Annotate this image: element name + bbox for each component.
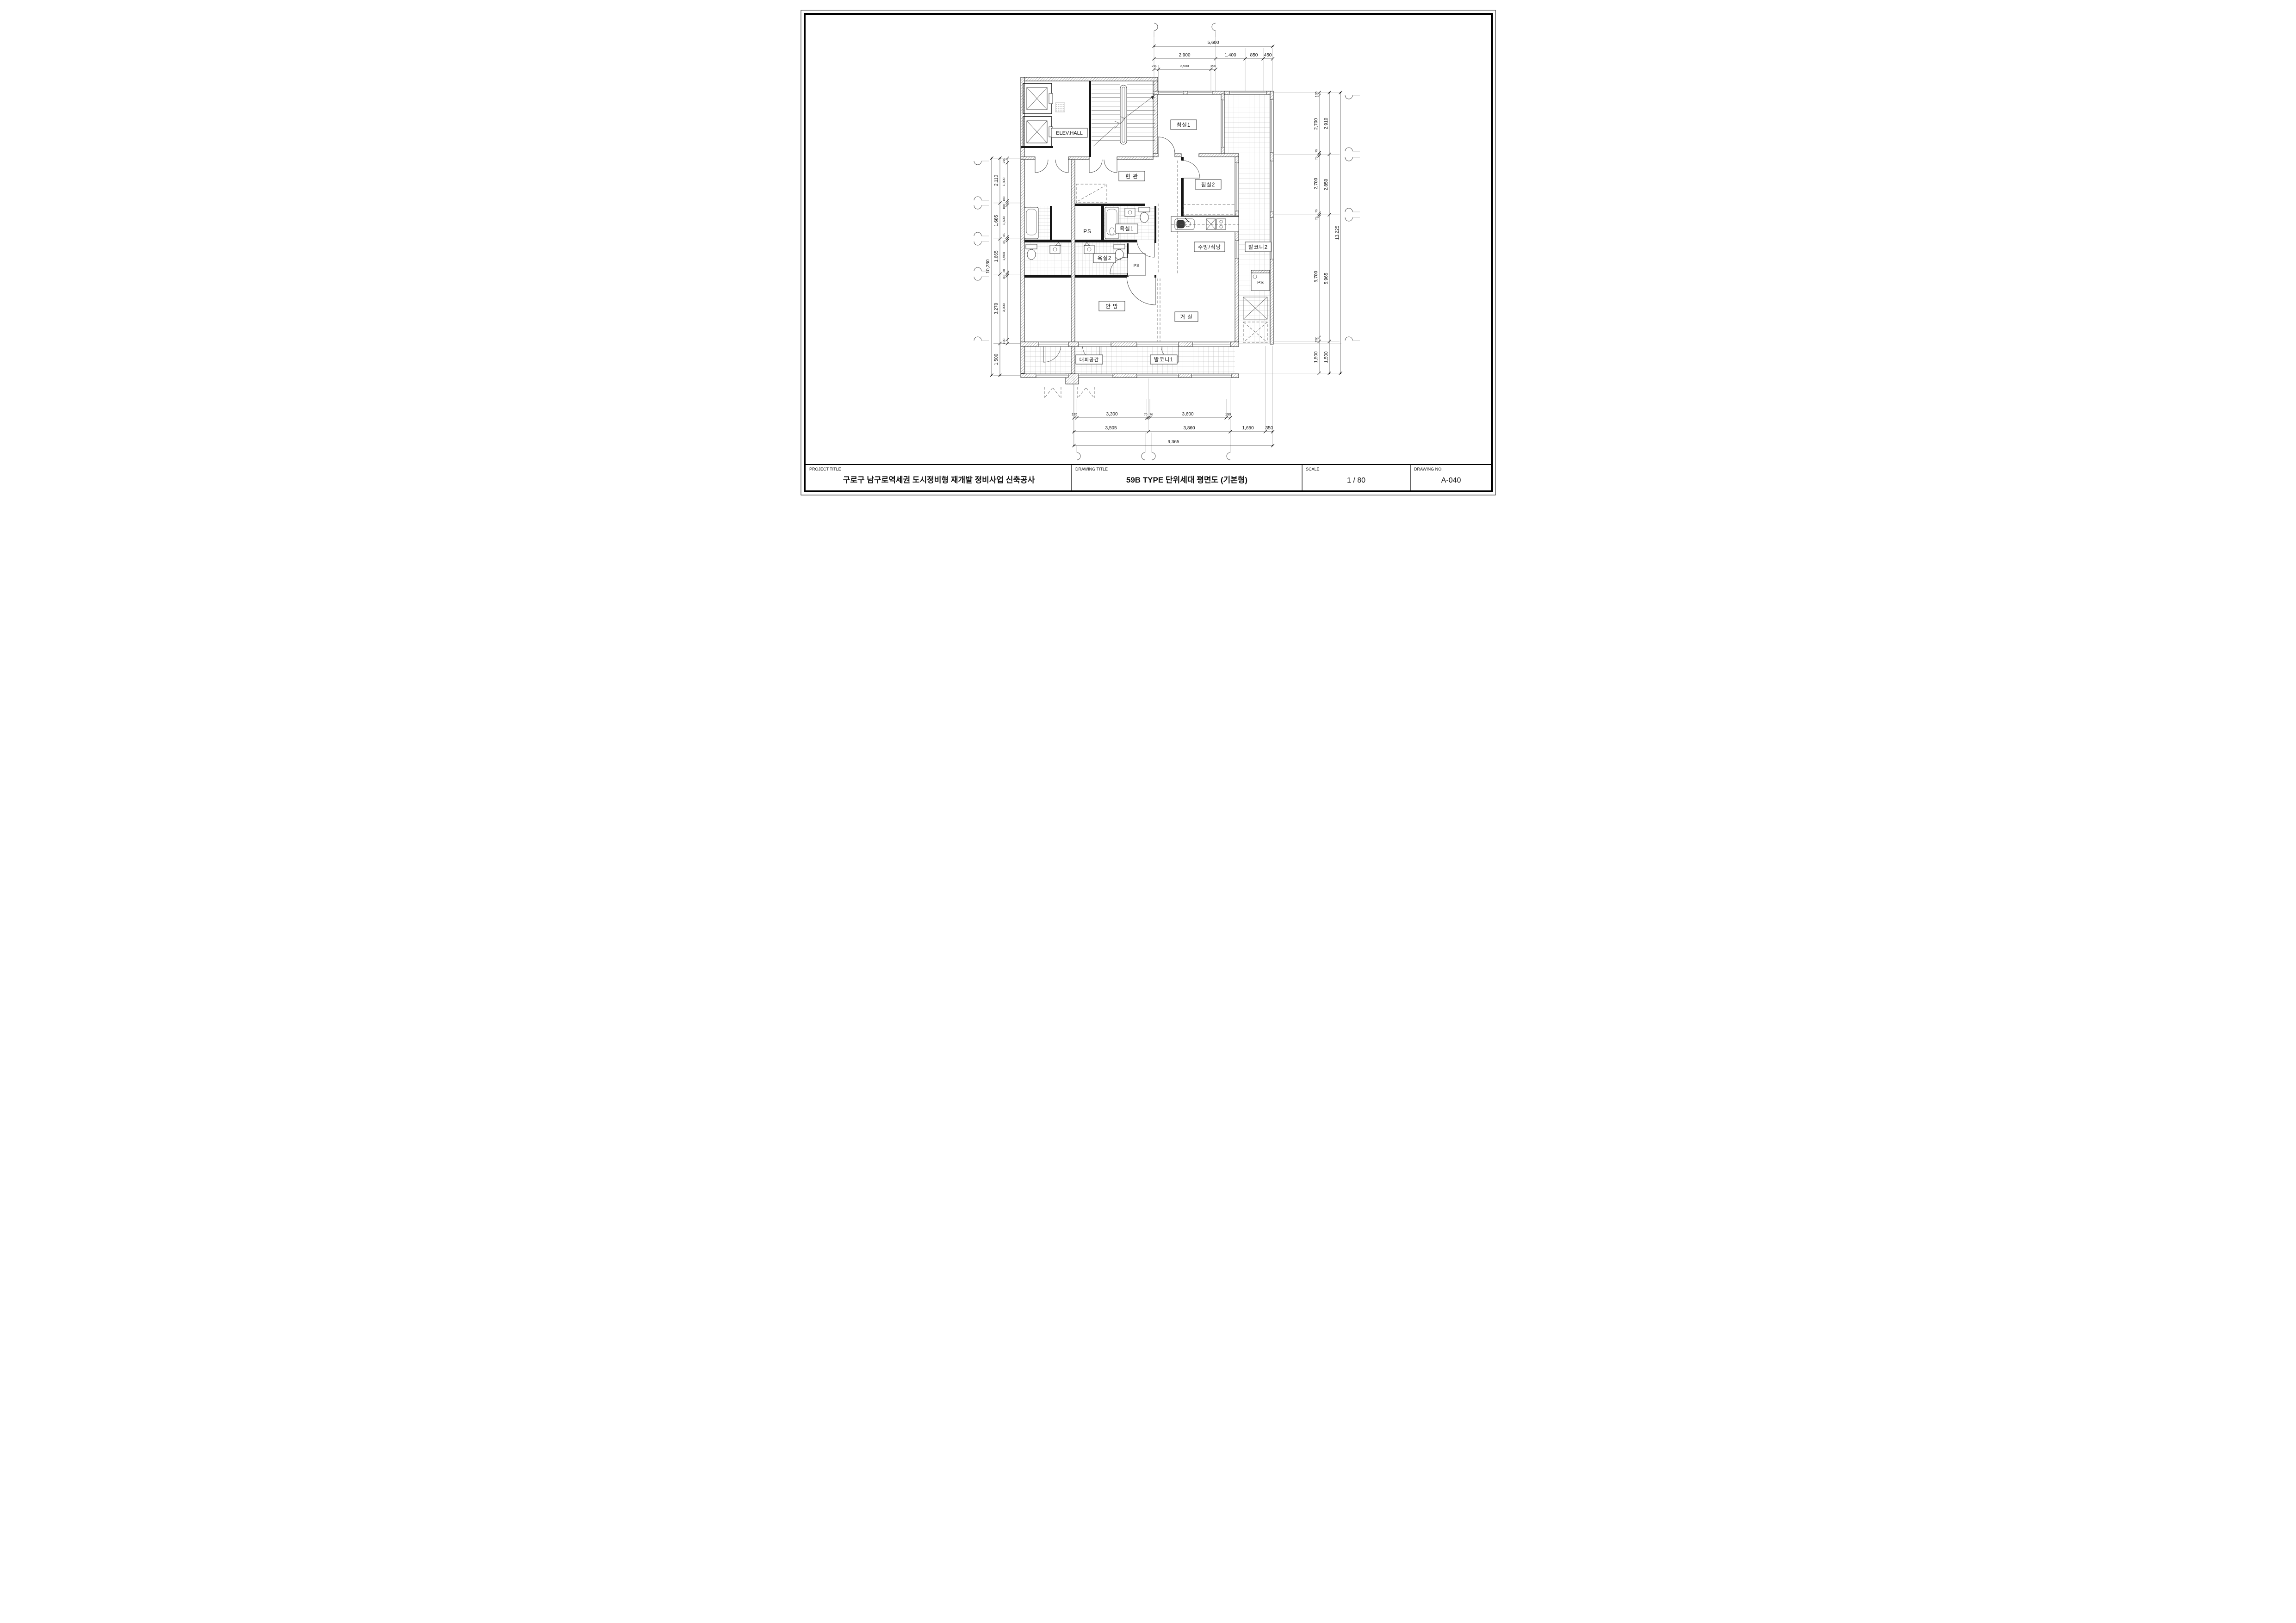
grid-bubble [974, 337, 981, 341]
grid-bubble [974, 277, 981, 280]
svg-text:3,000: 3,000 [1002, 304, 1006, 312]
ps-label-3: PS [1257, 280, 1263, 285]
sink [1084, 245, 1094, 254]
svg-text:1,400: 1,400 [1224, 53, 1236, 58]
grid-bubble [1345, 337, 1353, 341]
svg-text:발코니1: 발코니1 [1154, 357, 1173, 363]
room-label-entrance: 현 관 [1119, 171, 1145, 181]
grid-bubble [1152, 452, 1155, 460]
svg-text:450: 450 [1264, 53, 1272, 58]
room-label-living: 거 실 [1175, 312, 1198, 322]
svg-text:85: 85 [1003, 240, 1006, 244]
sink [1125, 208, 1135, 217]
room-label-kitchen: 주방/식당 [1194, 242, 1225, 252]
grid-bubble [974, 232, 981, 236]
floor-drain-grid [1055, 103, 1065, 112]
grid-bubble [1227, 452, 1230, 460]
dimension-top: 5,600 2,900 1,400 850 450 210 2,500 190 [1151, 40, 1272, 68]
svg-text:190: 190 [1314, 337, 1318, 343]
floor-plan-drawing: PROJECT TITLE 구로구 남구로역세권 도시정비형 재개발 정비사업 … [791, 0, 1506, 505]
svg-text:발코니2: 발코니2 [1248, 244, 1267, 250]
title-block: PROJECT TITLE 구로구 남구로역세권 도시정비형 재개발 정비사업 … [806, 465, 1491, 490]
project-title: 구로구 남구로역세권 도시정비형 재개발 정비사업 신축공사 [843, 475, 1035, 484]
svg-text:100: 100 [1003, 196, 1006, 201]
svg-text:2,910: 2,910 [1324, 118, 1329, 129]
room-label-bath1: 욕실1 [1116, 224, 1138, 233]
dimension-right: 135 2,700 75 75 2,700 75 75 5,700 190 1,… [1314, 92, 1340, 363]
svg-text:1,500: 1,500 [1002, 217, 1006, 225]
dimension-bottom: 135 3,300 70 70 3,600 190 3,505 3,860 1,… [1071, 412, 1273, 445]
svg-text:75: 75 [1315, 217, 1318, 220]
svg-text:2,850: 2,850 [1324, 179, 1329, 190]
svg-text:1,500: 1,500 [1324, 351, 1329, 363]
svg-text:190: 190 [1002, 339, 1006, 345]
grid-bubble [1154, 23, 1158, 31]
scale-value: 1 / 80 [1347, 477, 1365, 484]
room-label-bedroom1: 침실1 [1171, 120, 1197, 130]
svg-text:ELEV.HALL: ELEV.HALL [1056, 130, 1083, 136]
svg-text:욕실2: 욕실2 [1097, 255, 1111, 261]
drawing-no-label: DRAWING NO. [1414, 467, 1443, 471]
drawing-title-label: DRAWING TITLE [1075, 467, 1108, 471]
scale-label: SCALE [1306, 467, 1320, 471]
svg-text:10,230: 10,230 [986, 259, 991, 273]
svg-text:2,110: 2,110 [994, 174, 999, 186]
grid-bubble [1345, 208, 1353, 212]
svg-text:80: 80 [1003, 275, 1006, 279]
svg-text:욕실1: 욕실1 [1119, 226, 1134, 232]
drawing-no: A-040 [1441, 477, 1461, 484]
room-label-refuge: 대피공간 [1076, 355, 1103, 364]
svg-text:1,500: 1,500 [994, 353, 999, 365]
svg-text:3,300: 3,300 [1106, 412, 1117, 417]
svg-text:70: 70 [1149, 413, 1153, 416]
svg-text:침실2: 침실2 [1201, 182, 1215, 188]
svg-text:9,365: 9,365 [1167, 440, 1179, 445]
svg-text:5,600: 5,600 [1207, 40, 1219, 45]
svg-text:1,665: 1,665 [994, 250, 999, 262]
ps-label-2: PS [1133, 263, 1139, 268]
svg-text:210: 210 [1002, 158, 1006, 164]
svg-text:1,650: 1,650 [1242, 426, 1253, 431]
grid-bubble [974, 205, 981, 209]
svg-text:3,860: 3,860 [1183, 426, 1195, 431]
svg-text:85: 85 [1003, 233, 1006, 237]
svg-text:주방/식당: 주방/식당 [1198, 244, 1221, 250]
toilet [1114, 244, 1125, 249]
svg-text:75: 75 [1315, 149, 1318, 153]
svg-text:135: 135 [1071, 412, 1077, 416]
room-label-bath2: 욕실2 [1093, 254, 1116, 263]
project-title-label: PROJECT TITLE [809, 467, 841, 471]
svg-text:2,700: 2,700 [1314, 178, 1319, 189]
svg-text:3,600: 3,600 [1182, 412, 1193, 417]
svg-text:5,965: 5,965 [1324, 273, 1329, 284]
svg-text:2,700: 2,700 [1314, 118, 1319, 130]
grid-bubble [974, 242, 981, 245]
floor-plan: 침실1 현 관 침실2 욕실1 욕실2 주방/식당 발코니2 안 방 거 실 대… [974, 23, 1360, 460]
kitchen-counter [1171, 217, 1239, 232]
svg-text:현 관: 현 관 [1125, 173, 1138, 180]
grid-bubble [974, 197, 981, 200]
grid-bubble [1345, 157, 1353, 161]
grid-bubble [1345, 95, 1353, 99]
grid-bubble [1345, 148, 1353, 151]
grid-bubble [1212, 23, 1216, 31]
svg-text:190: 190 [1225, 412, 1231, 416]
drawing-title: 59B TYPE 단위세대 평면도 (기본형) [1126, 475, 1247, 484]
dimension-left: 10,230 2,110 1,685 1,665 3,270 1,500 210… [986, 158, 1006, 365]
bathtub-neighbor [1024, 207, 1038, 239]
svg-text:거 실: 거 실 [1180, 314, 1192, 320]
svg-text:75: 75 [1315, 156, 1318, 160]
toilet-neighbor [1026, 244, 1037, 249]
svg-text:13,225: 13,225 [1335, 225, 1340, 240]
room-label-balcony1: 발코니1 [1150, 355, 1177, 364]
svg-text:안 방: 안 방 [1105, 304, 1118, 310]
sheet-border [801, 10, 1496, 495]
grid-bubble [1345, 217, 1353, 221]
grid-bubble [974, 161, 981, 165]
svg-text:70: 70 [1144, 413, 1148, 416]
svg-text:침실1: 침실1 [1176, 122, 1191, 128]
room-label-elev-hall: ELEV.HALL [1051, 128, 1087, 137]
svg-text:1,500: 1,500 [1002, 252, 1006, 261]
grid-bubble [1142, 452, 1145, 460]
toilet [1139, 207, 1150, 212]
svg-text:75: 75 [1315, 209, 1318, 213]
staircase [1093, 85, 1154, 146]
grid-bubble [974, 267, 981, 271]
svg-text:1,685: 1,685 [994, 215, 999, 226]
svg-text:1,800: 1,800 [1002, 178, 1006, 186]
ps-label-1: PS [1083, 229, 1091, 235]
svg-text:1,500: 1,500 [1314, 351, 1319, 363]
drawing-sheet: PROJECT TITLE 구로구 남구로역세권 도시정비형 재개발 정비사업 … [791, 0, 1506, 505]
svg-text:190: 190 [1210, 64, 1216, 68]
grid-bubble [1077, 452, 1080, 460]
svg-text:대피공간: 대피공간 [1079, 357, 1099, 363]
svg-text:850: 850 [1250, 53, 1258, 58]
svg-text:350: 350 [1265, 426, 1273, 431]
svg-text:5,700: 5,700 [1314, 271, 1319, 282]
sink-neighbor [1050, 245, 1060, 254]
svg-text:210: 210 [1151, 64, 1157, 68]
bathtub [1105, 207, 1119, 239]
svg-text:2,500: 2,500 [1180, 64, 1189, 68]
svg-text:80: 80 [1003, 269, 1006, 273]
svg-text:100: 100 [1003, 204, 1006, 209]
room-label-master-bedroom: 안 방 [1099, 301, 1125, 311]
svg-text:2,900: 2,900 [1179, 53, 1190, 58]
svg-text:135: 135 [1314, 92, 1318, 98]
svg-text:3,270: 3,270 [994, 303, 999, 314]
room-label-bedroom2: 침실2 [1195, 180, 1221, 189]
svg-text:3,505: 3,505 [1105, 426, 1117, 431]
room-label-balcony2: 발코니2 [1245, 242, 1271, 252]
